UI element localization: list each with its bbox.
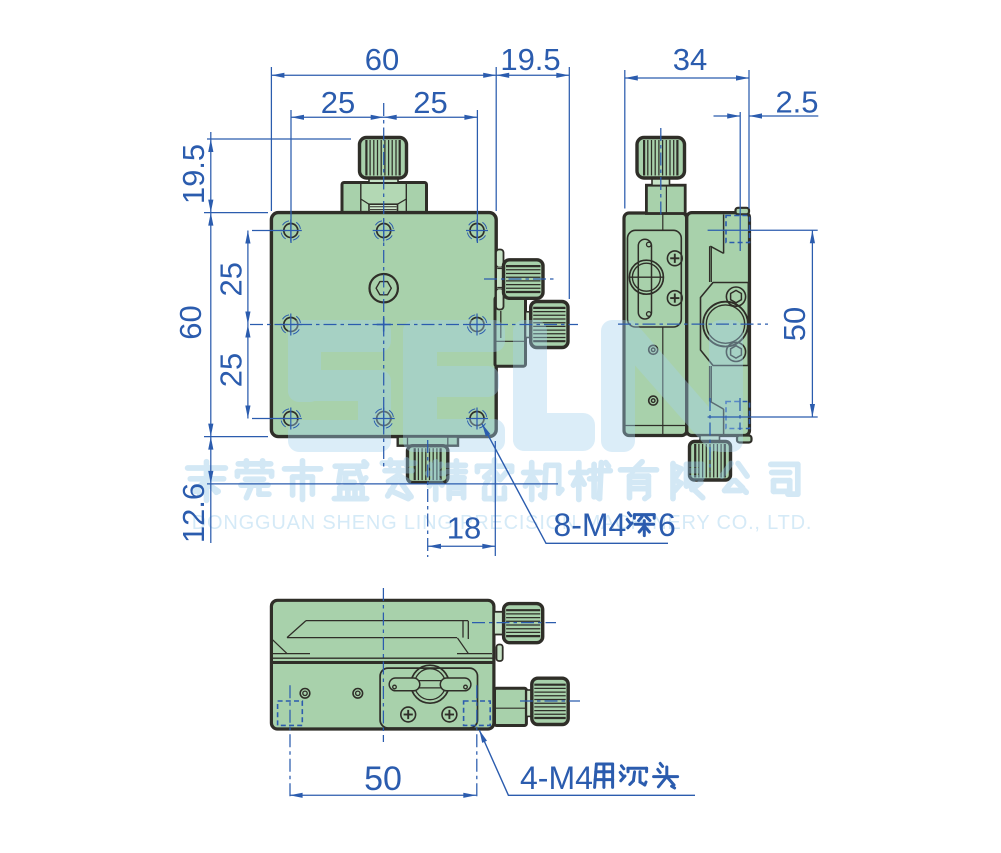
svg-text:8-M4: 8-M4 [553,507,626,543]
svg-text:25: 25 [413,85,447,120]
svg-text:2.5: 2.5 [775,85,818,120]
svg-text:19.5: 19.5 [176,144,211,204]
svg-text:25: 25 [214,353,249,387]
svg-text:60: 60 [365,42,399,77]
svg-text:6: 6 [658,507,676,543]
svg-text:50: 50 [777,307,812,341]
svg-text:25: 25 [214,262,249,296]
svg-text:50: 50 [364,760,402,798]
svg-text:4-M4: 4-M4 [520,760,593,796]
svg-text:25: 25 [321,85,355,120]
svg-text:12.6: 12.6 [176,483,211,543]
svg-text:DONGGUAN SHENG LING PRECISION: DONGGUAN SHENG LING PRECISION MACHINERY … [192,512,812,534]
svg-text:34: 34 [673,42,707,77]
svg-text:18: 18 [447,511,481,546]
svg-text:60: 60 [173,305,208,339]
svg-text:19.5: 19.5 [500,42,560,77]
